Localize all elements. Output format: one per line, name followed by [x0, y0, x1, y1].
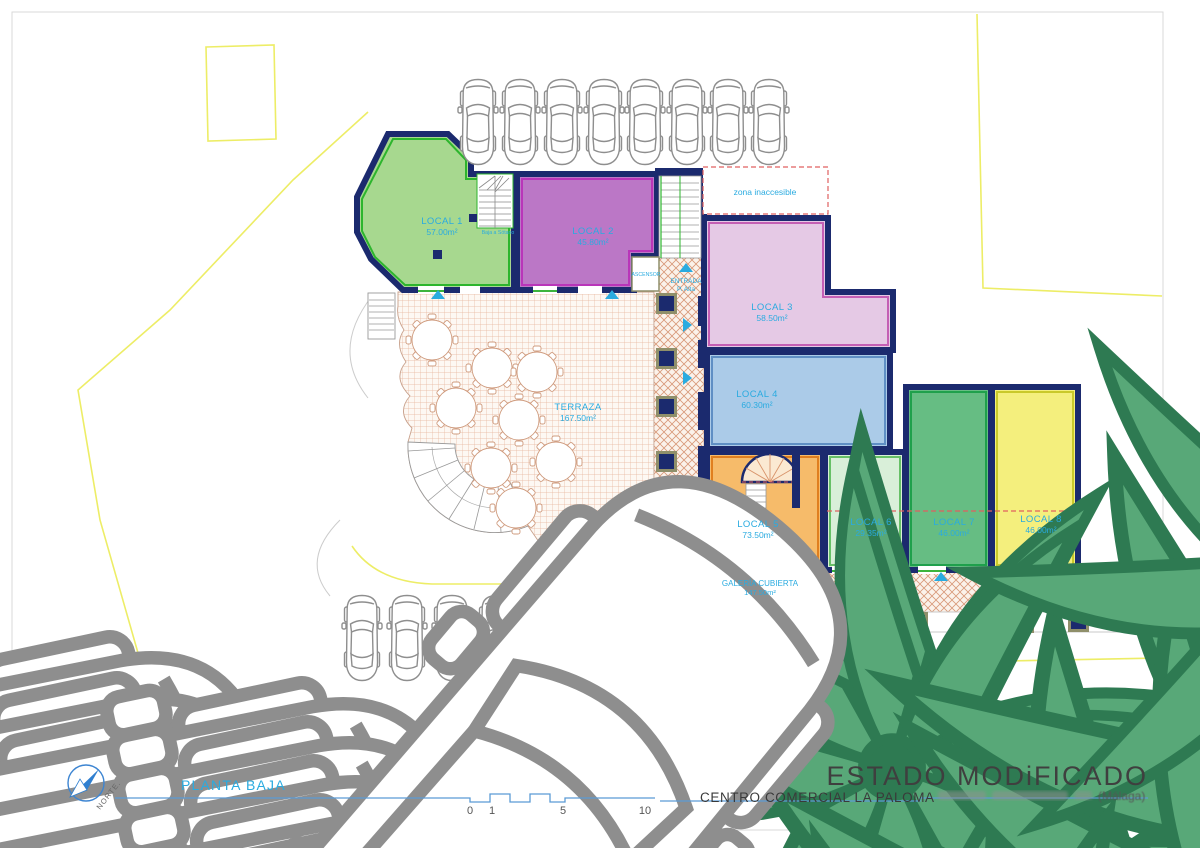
column-icon	[656, 293, 677, 314]
local-3-label: LOCAL 3	[751, 302, 793, 313]
floor-plan: LOCAL 1 57.00m² LOCAL 2 45.80m² LOCAL 3 …	[0, 0, 1200, 848]
local-1-label: LOCAL 1	[421, 216, 463, 227]
local-3	[704, 218, 893, 350]
car-icon	[708, 80, 748, 165]
car-icon	[625, 80, 665, 165]
terraza-label: TERRAZA	[554, 402, 601, 413]
stair-local1-basement	[477, 174, 513, 228]
local-8-area: 46.00m²	[1025, 525, 1056, 535]
car-icon	[584, 80, 624, 165]
local-7-label: LOCAL 7	[933, 517, 975, 528]
scale-tick: 1	[489, 805, 495, 817]
car-icon	[667, 80, 707, 165]
landscape-curves	[317, 296, 372, 596]
local-5-label: LOCAL 5	[737, 519, 779, 530]
local-7	[906, 387, 991, 570]
car-icon	[342, 596, 382, 681]
terraza-area: 167.50m²	[560, 413, 596, 423]
galeria-label: GALERÍA CUBIERTA	[722, 579, 799, 588]
car-icon	[387, 596, 427, 681]
car-icon	[542, 80, 582, 165]
entrada-label-1: ENTRADA	[670, 278, 702, 285]
location-suffix: (Málaga)	[1098, 789, 1145, 803]
scale-tick: 10	[639, 805, 651, 817]
project-name: CENTRO COMERCIAL LA PALOMA	[700, 790, 935, 805]
local-4-label: LOCAL 4	[736, 389, 778, 400]
car-icon	[500, 80, 540, 165]
baja-sotano-label: Baja a Sótano	[482, 230, 515, 236]
stair-entrada-upper	[659, 176, 701, 258]
car-icon	[458, 80, 498, 165]
local-8-label: LOCAL 8	[1020, 514, 1062, 525]
stair-terrace-west	[368, 293, 395, 339]
local-2-label: LOCAL 2	[572, 226, 614, 237]
local-3-area: 58.50m²	[756, 313, 787, 323]
local-2-area: 45.80m²	[577, 237, 608, 247]
local-6-label: LOCAL 6	[850, 517, 892, 528]
zona-inaccesible-label: zona inaccesible	[734, 187, 797, 197]
entrada-label-2: P. Alta	[677, 286, 695, 293]
parking-row-top	[458, 80, 789, 165]
column-icon	[656, 451, 677, 472]
column-icon	[656, 348, 677, 369]
local-6-area: 29.35m²	[855, 528, 886, 538]
ascensor-label: ASCENSOR	[631, 272, 660, 278]
car-icon	[749, 80, 789, 165]
local-5-area: 73.50m²	[742, 530, 773, 540]
local-4-area: 60.30m²	[741, 400, 772, 410]
status-title: ESTADO MODiFICADO	[826, 761, 1148, 791]
scale-tick: 5	[560, 805, 566, 817]
scale-tick: 0	[467, 805, 473, 817]
local-7-area: 46.00m²	[938, 528, 969, 538]
galeria-area: 147.50m²	[744, 588, 776, 597]
drawing-title: PLANTA BAJA	[181, 777, 286, 793]
local-1-area: 57.00m²	[426, 227, 457, 237]
column-icon	[656, 396, 677, 417]
drawing-sheet: LOCAL 1 57.00m² LOCAL 2 45.80m² LOCAL 3 …	[0, 0, 1200, 848]
